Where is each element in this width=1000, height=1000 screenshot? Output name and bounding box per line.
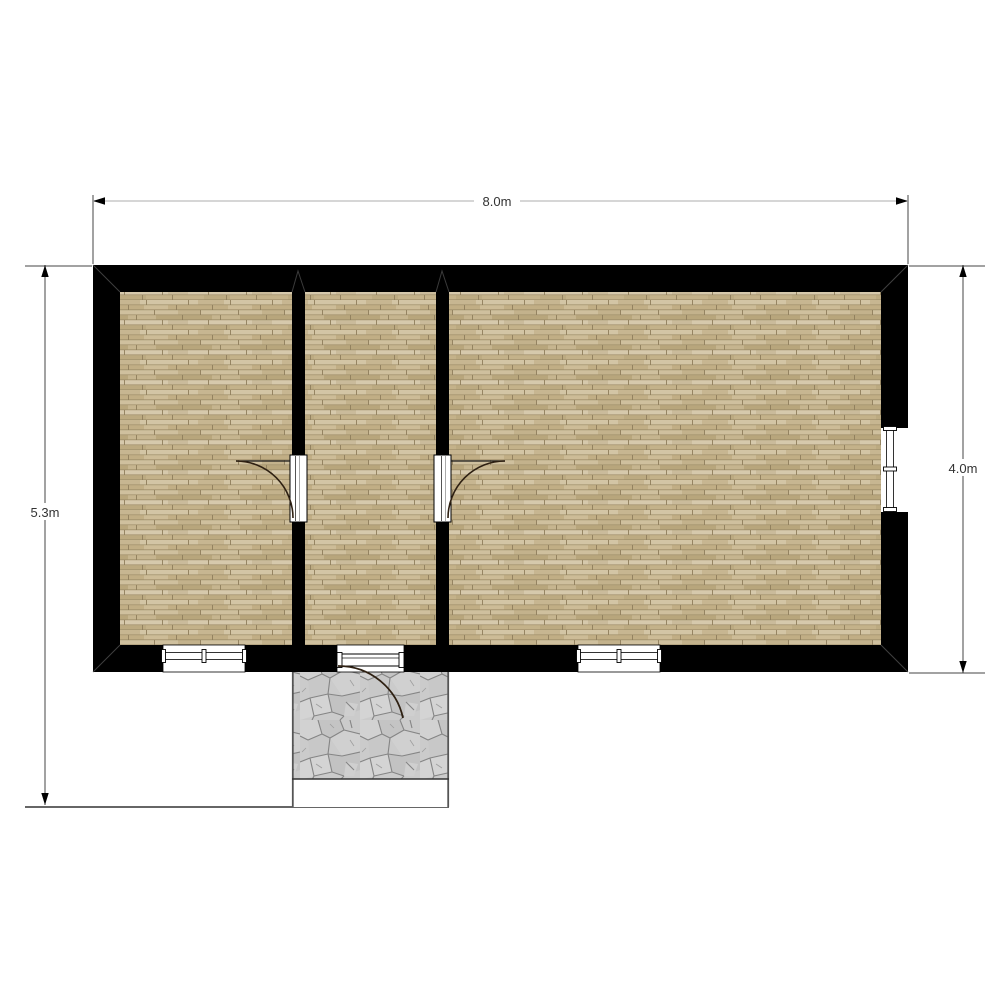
window-frame-cap	[243, 650, 247, 663]
window-frame-cap	[577, 650, 581, 663]
window-frame-cap	[884, 467, 897, 471]
patio-step	[292, 779, 449, 807]
window-frame-cap	[884, 427, 897, 431]
window-frame-cap	[202, 650, 206, 663]
window-frame-cap	[617, 650, 621, 663]
patio	[292, 672, 449, 807]
window-frame-cap	[162, 650, 166, 663]
dimension-label-right-height: 4.0m	[949, 461, 978, 476]
patio-stone-surface	[292, 672, 449, 779]
room-left-floor	[120, 292, 292, 645]
floor-plan-drawing: 8.0m 5.3m 4.0m	[0, 0, 1000, 1000]
dimension-label-left-height: 5.3m	[31, 505, 60, 520]
room-right-floor	[449, 292, 881, 645]
room-middle-floor	[305, 292, 436, 645]
floor-plan-canvas: 8.0m 5.3m 4.0m	[0, 0, 1000, 1000]
door-panel	[337, 654, 404, 666]
window-left-room	[162, 645, 247, 672]
dimension-label-width: 8.0m	[483, 194, 512, 209]
window-east-wall	[881, 427, 908, 513]
window-frame-cap	[658, 650, 662, 663]
window-frame-cap	[884, 508, 897, 512]
door-frame-cap	[399, 653, 404, 668]
window-right-room	[577, 645, 662, 672]
building	[93, 265, 908, 672]
